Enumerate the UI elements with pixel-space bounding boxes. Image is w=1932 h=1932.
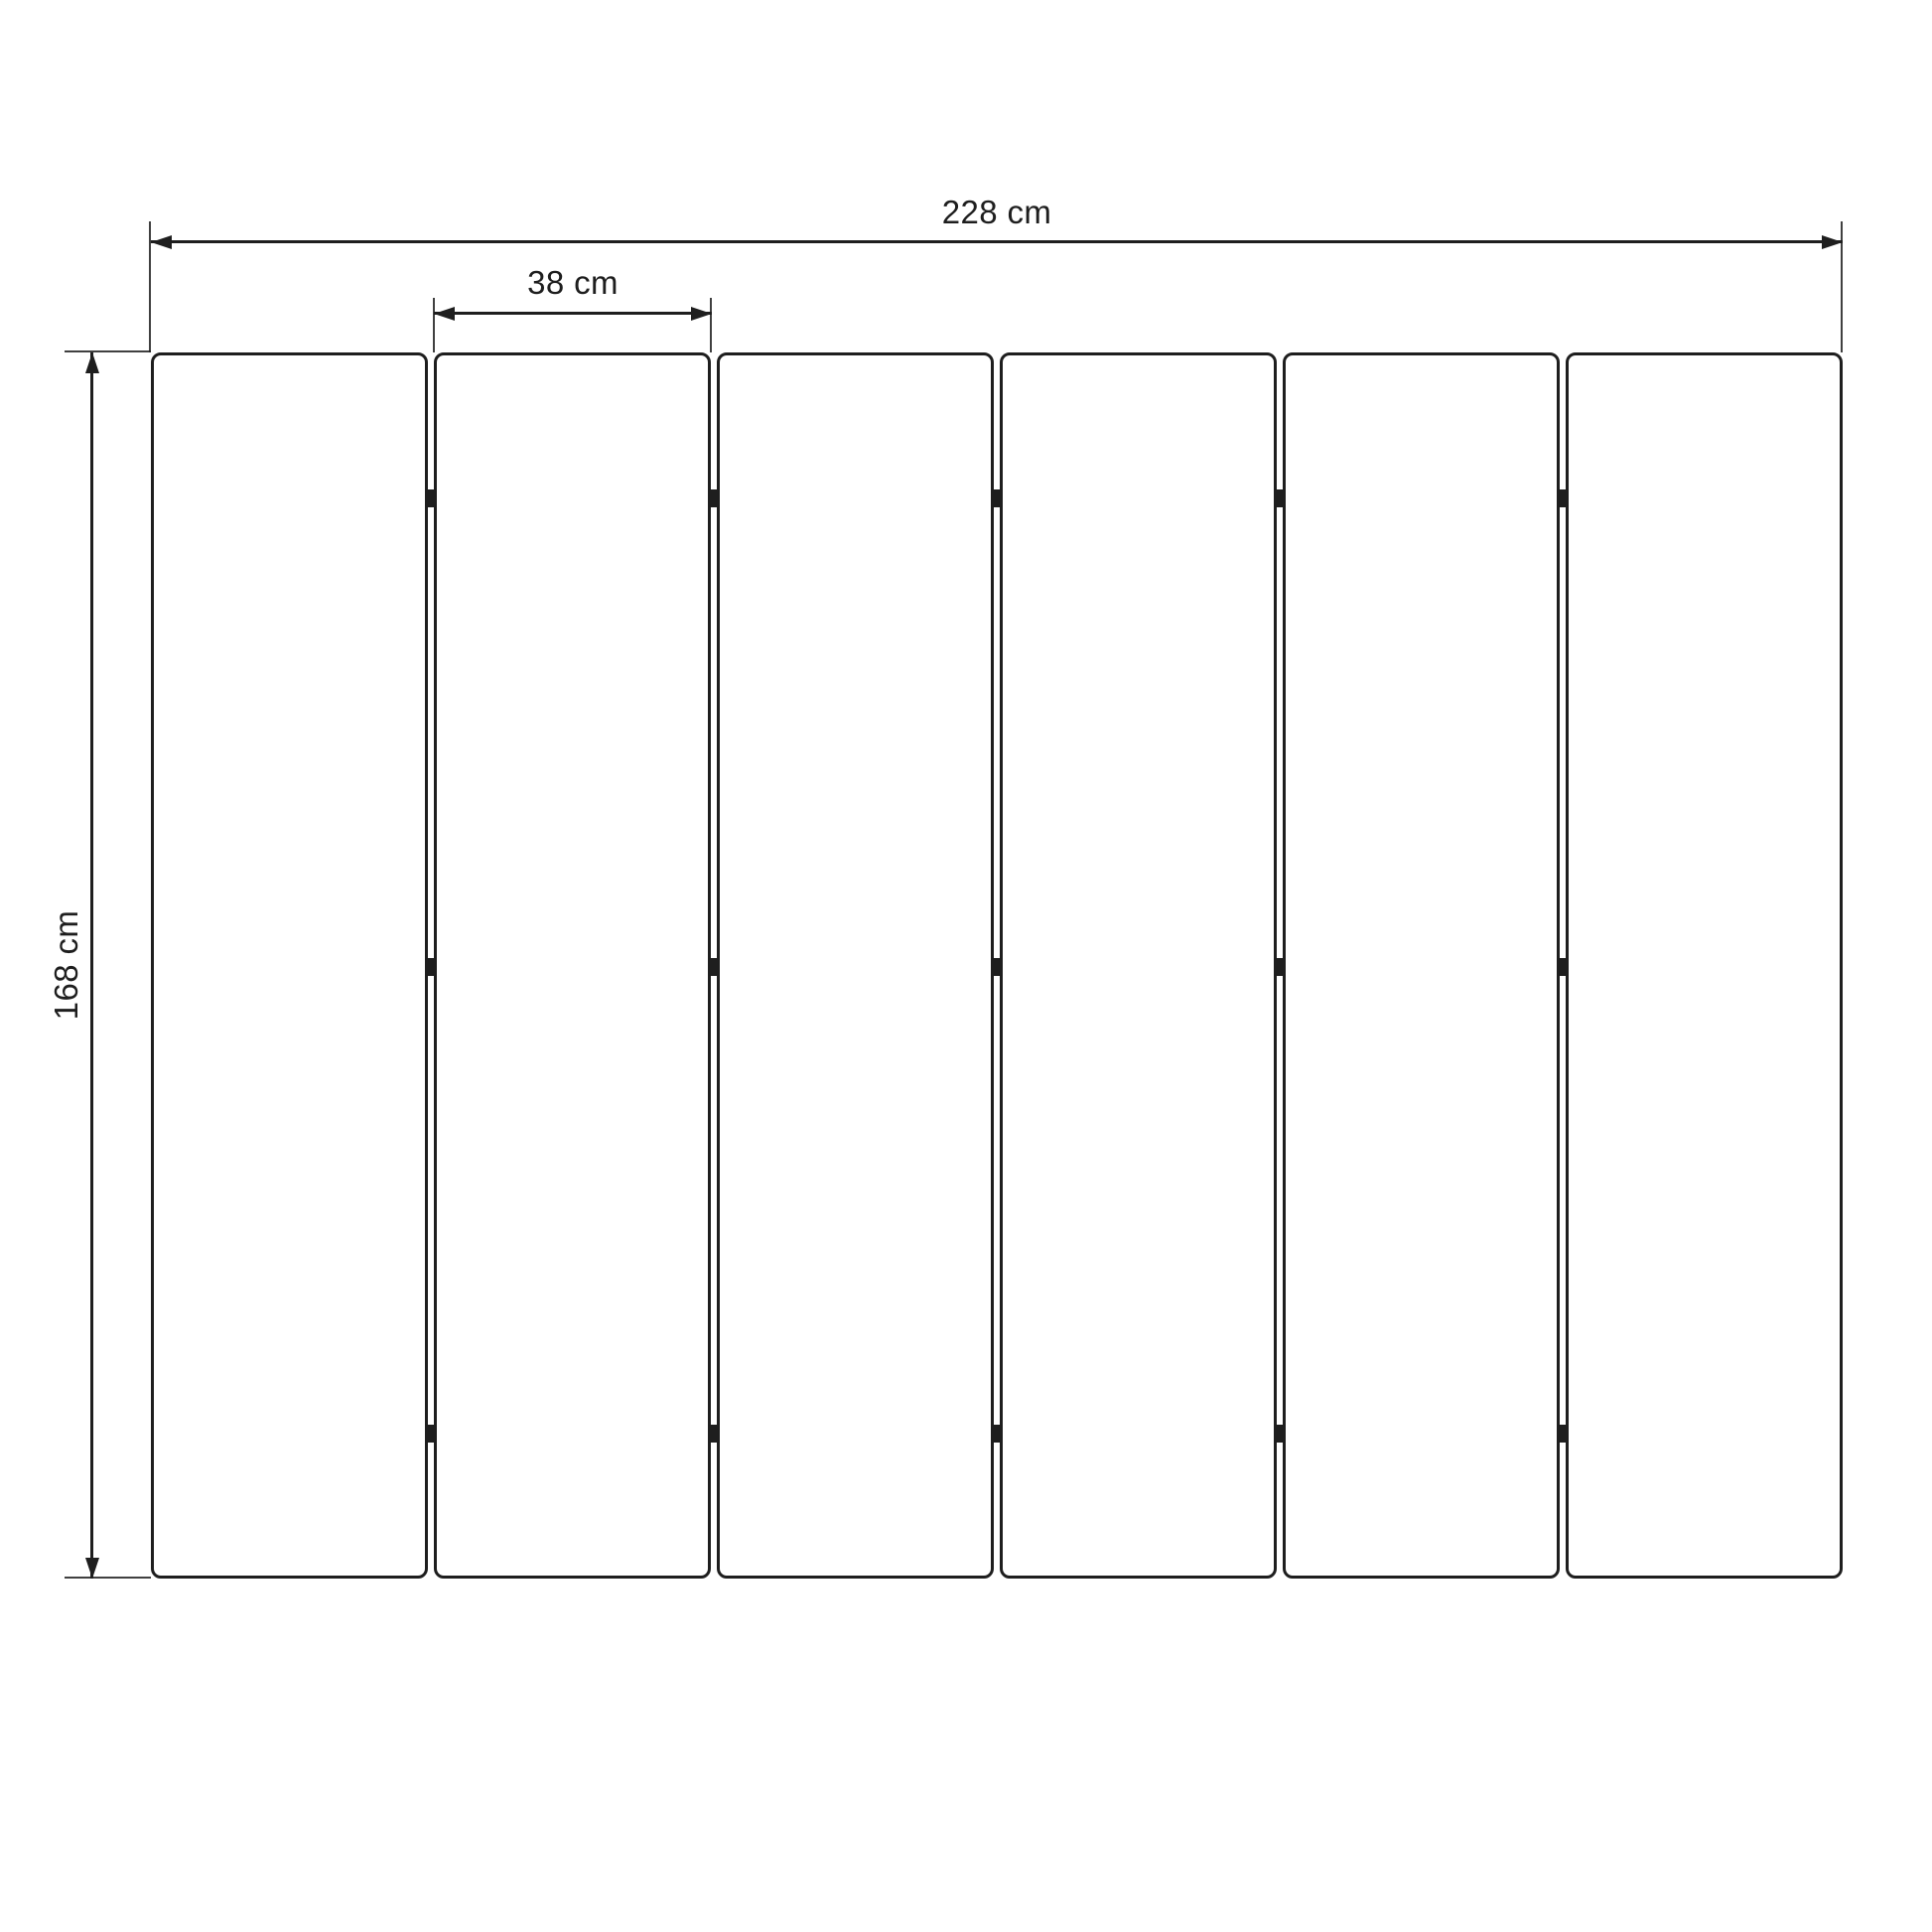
hinge-column (426, 0, 436, 1932)
hinge-icon (992, 489, 1002, 507)
hinge-icon (426, 489, 436, 507)
panel (1566, 352, 1843, 1579)
arrow-down-icon (85, 1558, 99, 1579)
arrow-left-icon (151, 235, 172, 249)
drawing-canvas: 228 cm 38 cm 168 cm (0, 0, 1932, 1932)
dimension-line-panel-width (434, 312, 712, 315)
dimension-label-panel-width: 38 cm (434, 266, 712, 299)
arrow-left-icon (434, 307, 455, 321)
hinge-icon (1558, 958, 1568, 976)
panel (151, 352, 428, 1579)
panel (1283, 352, 1560, 1579)
hinge-icon (992, 1425, 1002, 1443)
panel (434, 352, 711, 1579)
extension-line-top (65, 350, 151, 352)
hinge-icon (1558, 1425, 1568, 1443)
hinge-icon (1558, 489, 1568, 507)
arrow-right-icon (1822, 235, 1843, 249)
hinge-icon (992, 958, 1002, 976)
hinge-icon (709, 958, 719, 976)
panel (717, 352, 994, 1579)
hinge-column (992, 0, 1002, 1932)
hinge-icon (709, 1425, 719, 1443)
hinge-icon (709, 489, 719, 507)
dimension-line-height (90, 352, 93, 1579)
extension-line-bottom (65, 1577, 151, 1579)
hinge-icon (1275, 958, 1285, 976)
hinge-icon (1275, 1425, 1285, 1443)
panel (1000, 352, 1277, 1579)
hinge-column (1558, 0, 1568, 1932)
arrow-up-icon (85, 352, 99, 373)
hinge-icon (1275, 489, 1285, 507)
hinge-icon (426, 958, 436, 976)
hinge-icon (426, 1425, 436, 1443)
hinge-column (709, 0, 719, 1932)
hinge-column (1275, 0, 1285, 1932)
